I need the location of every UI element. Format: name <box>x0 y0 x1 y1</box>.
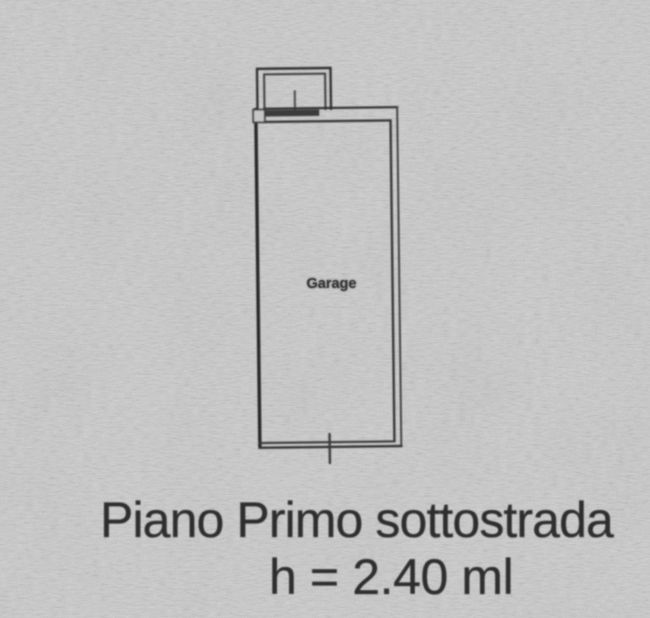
svg-text:Garage: Garage <box>307 276 357 292</box>
